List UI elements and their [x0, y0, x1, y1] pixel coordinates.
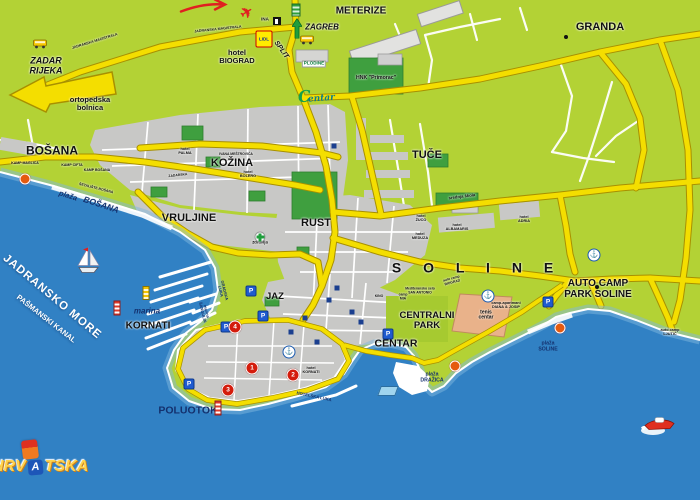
hrvatska-logo-letter-a: A [27, 459, 43, 475]
hrvatska-logo-part2: TSKA [45, 458, 89, 476]
centar-logo-rest: entar [308, 93, 336, 105]
hrvatska-logo-square [21, 439, 39, 460]
hrvatska-logo-part1: HRV [0, 458, 26, 476]
tourist-map-biograd: METERIZEGRANDAZAGREBSPLITZADAR RIJEKAJAD… [0, 0, 700, 500]
centar-shopping-logo: Centar [297, 85, 335, 108]
map-base-layer [0, 0, 700, 500]
hrvatska-tourism-logo: HRV A TSKA [0, 458, 88, 476]
